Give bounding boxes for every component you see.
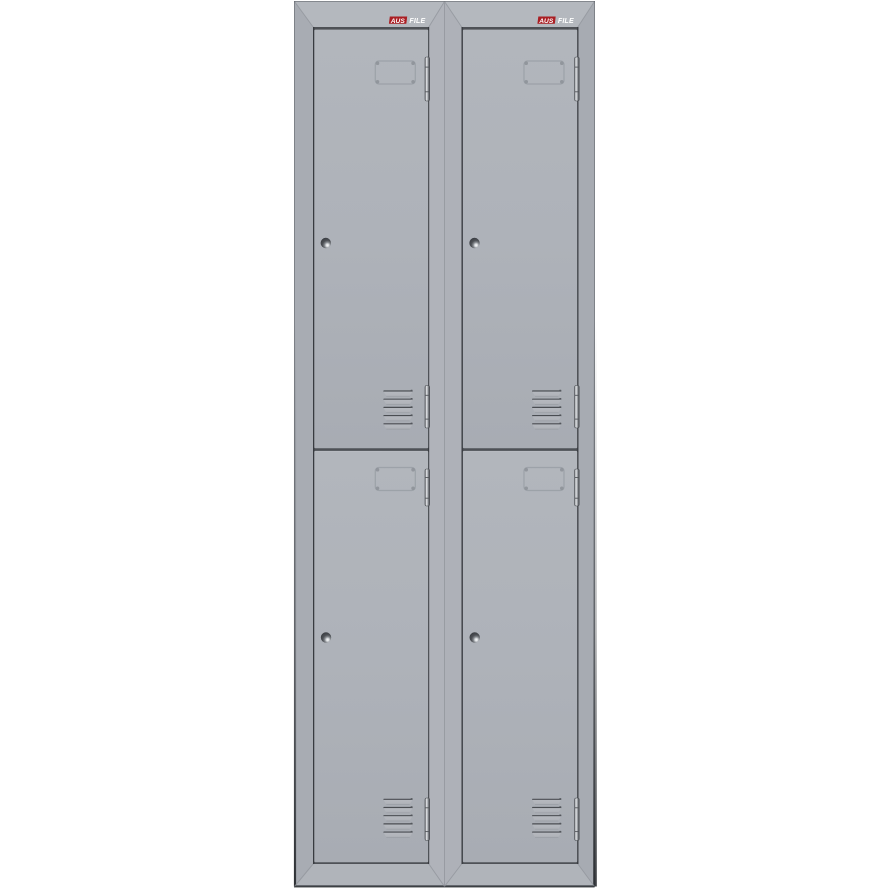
svg-text:FILE: FILE (558, 18, 574, 25)
svg-text:AUS: AUS (538, 18, 554, 25)
svg-text:AUS: AUS (390, 18, 406, 25)
svg-text:FILE: FILE (409, 18, 425, 25)
